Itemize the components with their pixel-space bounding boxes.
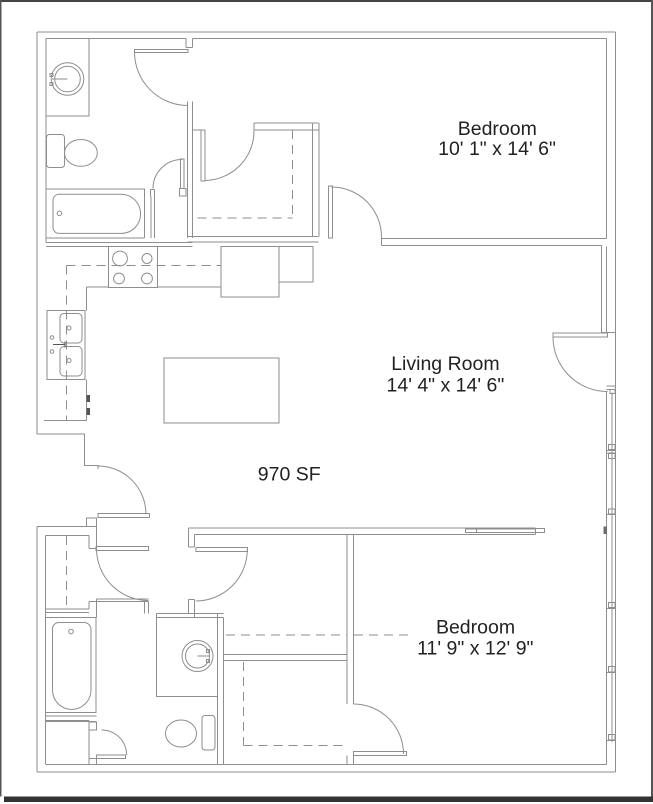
svg-text:10' 1" x 14' 6": 10' 1" x 14' 6"	[438, 138, 556, 160]
svg-text:14' 4" x 14' 6": 14' 4" x 14' 6"	[387, 374, 505, 396]
svg-text:Bedroom: Bedroom	[436, 617, 515, 639]
svg-text:Living Room: Living Room	[391, 353, 499, 375]
svg-text:Bedroom: Bedroom	[458, 118, 537, 140]
svg-text:970 SF: 970 SF	[258, 464, 321, 486]
svg-text:11' 9" x 12' 9": 11' 9" x 12' 9"	[417, 637, 533, 659]
